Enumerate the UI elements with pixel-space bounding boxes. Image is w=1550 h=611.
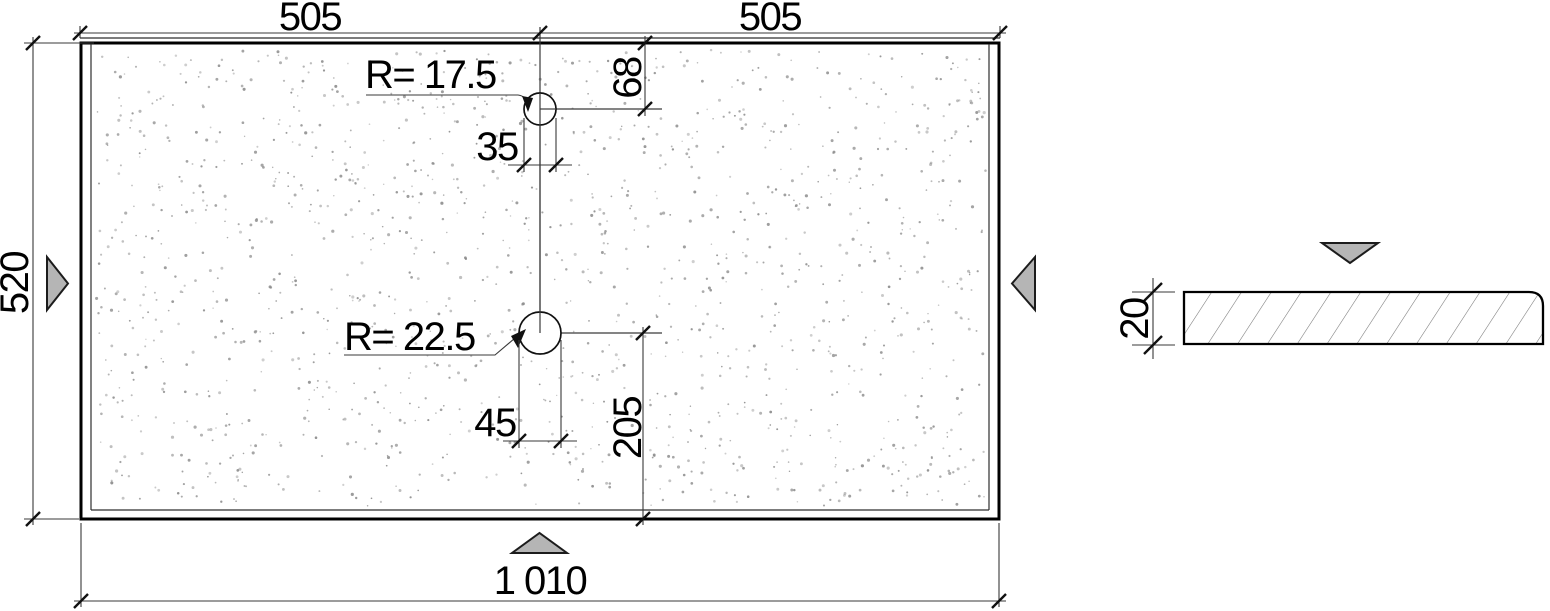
dim-thickness: 20	[1113, 278, 1175, 359]
drawing-canvas: 505 505 520 1 010 68	[0, 0, 1550, 611]
dim-label-68: 68	[606, 57, 650, 99]
dim-hole2-diameter: 45	[474, 340, 577, 448]
label-R22-5: R= 22.5	[344, 315, 475, 359]
panel-technical-drawing: 505 505 520 1 010 68	[0, 0, 1550, 611]
dim-label-1010: 1 010	[494, 559, 587, 603]
section-view: 20	[1113, 243, 1543, 359]
dim-hole1-diameter: 35	[476, 118, 572, 172]
dim-label-505-left: 505	[279, 0, 341, 39]
dim-label-45: 45	[474, 401, 516, 445]
dim-label-20: 20	[1113, 298, 1157, 340]
dim-label-505-right: 505	[739, 0, 801, 39]
dim-label-35: 35	[476, 125, 518, 169]
dim-label-520: 520	[0, 252, 37, 314]
dim-top-widths: 505 505	[73, 0, 1007, 40]
face-marker-icon	[1322, 243, 1378, 263]
edge-marker-bottom-icon	[512, 533, 567, 553]
edge-marker-left-icon	[47, 257, 68, 310]
callout-hole1-radius: R= 17.5	[365, 53, 533, 112]
dim-hole1-offset: 68	[606, 36, 652, 116]
dim-hole2-offset: 205	[606, 326, 650, 526]
callout-hole2-radius: R= 22.5	[344, 315, 526, 359]
edge-marker-right-icon	[1012, 257, 1035, 310]
plan-view: 505 505 520 1 010 68	[0, 0, 1035, 608]
dim-label-205: 205	[606, 397, 650, 459]
section-profile	[1184, 292, 1543, 344]
label-R17-5: R= 17.5	[365, 53, 496, 97]
